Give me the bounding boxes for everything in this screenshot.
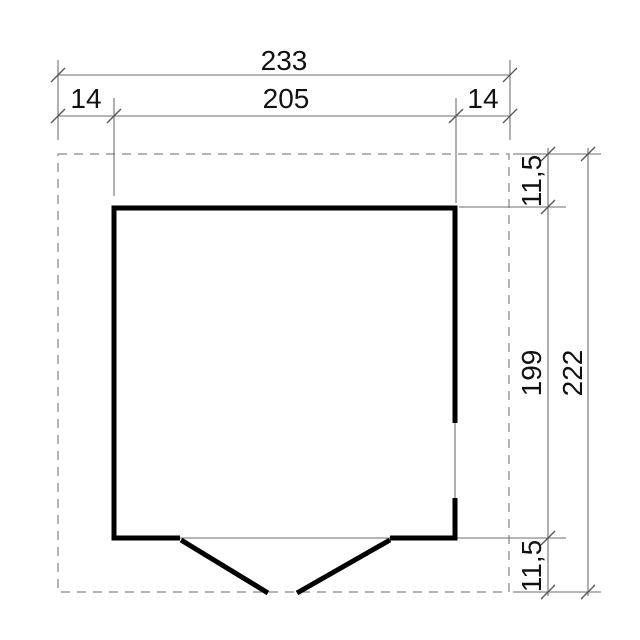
tick-marks (51, 68, 595, 599)
dim-label-height-wall: 199 (516, 350, 547, 397)
wall-right-lower-bottom-right (390, 498, 455, 538)
dim-label-height-overhang-top: 11,5 (516, 155, 547, 207)
door-leaf-right (297, 540, 390, 593)
wall-left-top-right-upper (114, 208, 455, 538)
dim-label-width-wall: 205 (263, 83, 310, 114)
door-leaf-left (181, 540, 268, 593)
dim-label-height-overhang-bottom: 11,5 (516, 540, 547, 592)
dim-label-height-total: 222 (557, 350, 588, 397)
dim-label-width-overhang-left: 14 (70, 83, 101, 114)
floor-plan-drawing: 233 14 205 14 11,5 199 222 11,5 (0, 0, 640, 640)
wall-outline (114, 208, 455, 593)
roof-overhang-outline (58, 154, 509, 592)
dim-label-width-total: 233 (261, 45, 308, 76)
dim-label-width-overhang-right: 14 (467, 83, 498, 114)
extension-lines (58, 60, 601, 592)
